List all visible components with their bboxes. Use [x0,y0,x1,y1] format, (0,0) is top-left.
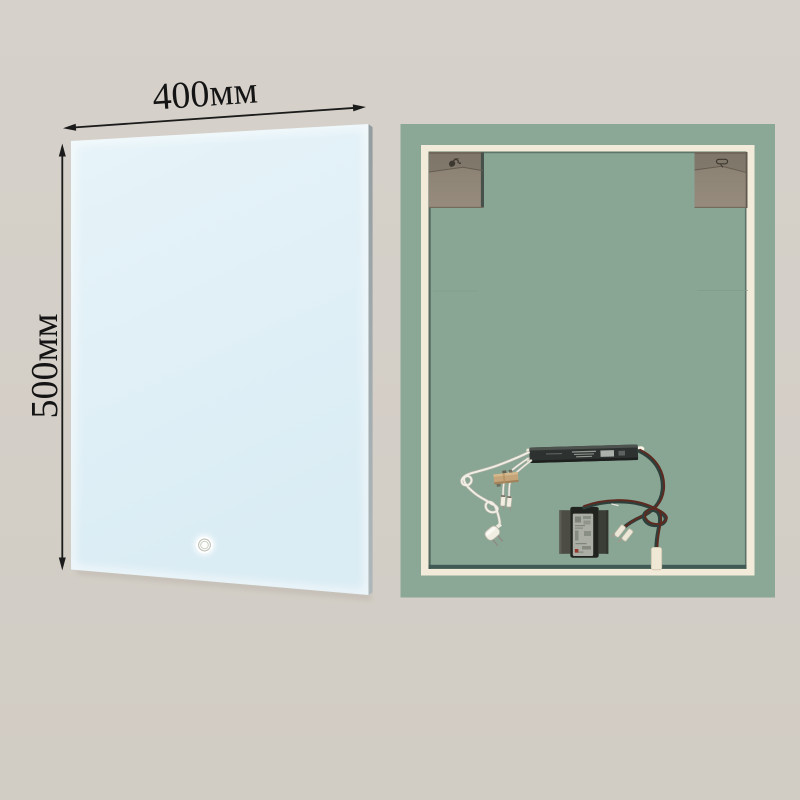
svg-text:500мм: 500мм [24,313,66,418]
svg-text:400мм: 400мм [151,69,259,118]
